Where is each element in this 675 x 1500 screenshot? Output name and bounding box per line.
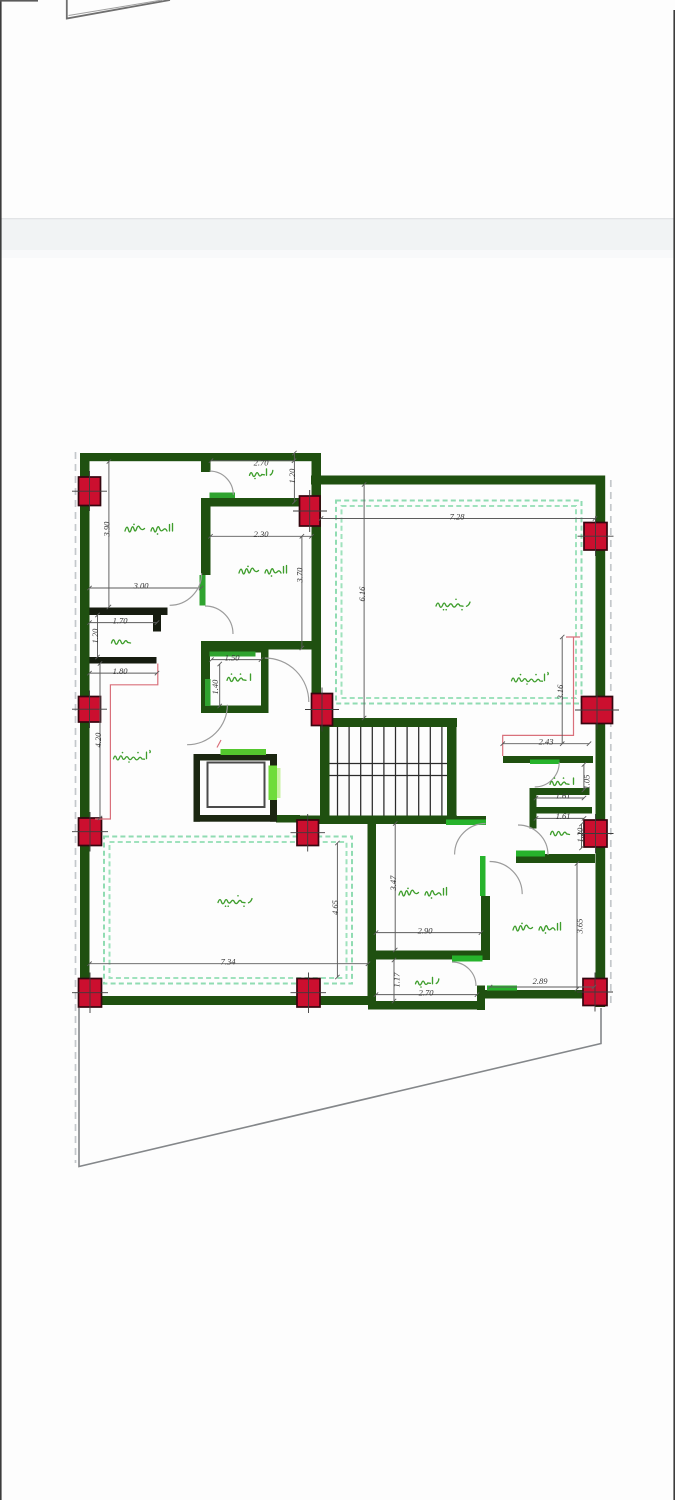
svg-text:1.80: 1.80 xyxy=(113,666,129,676)
svg-text:6.16: 6.16 xyxy=(357,586,367,602)
svg-text:2.70: 2.70 xyxy=(419,988,435,998)
svg-text:1.61: 1.61 xyxy=(556,791,571,801)
svg-text:1.05: 1.05 xyxy=(582,775,592,790)
svg-text:1.17: 1.17 xyxy=(392,972,402,988)
svg-text:3.90: 3.90 xyxy=(102,521,112,538)
svg-text:2.89: 2.89 xyxy=(533,976,549,986)
svg-text:3.70: 3.70 xyxy=(295,567,305,584)
svg-text:1.70: 1.70 xyxy=(113,616,129,626)
svg-text:1.20: 1.20 xyxy=(287,468,297,484)
svg-text:3.16: 3.16 xyxy=(555,684,565,701)
svg-text:3.47: 3.47 xyxy=(388,875,398,892)
svg-text:4.65: 4.65 xyxy=(330,900,340,915)
svg-text:1.61: 1.61 xyxy=(556,811,571,821)
svg-text:2.43: 2.43 xyxy=(539,737,554,747)
svg-text:1.50: 1.50 xyxy=(225,653,241,663)
svg-text:7.28: 7.28 xyxy=(450,512,466,522)
svg-text:3.65: 3.65 xyxy=(575,919,585,935)
svg-text:3.00: 3.00 xyxy=(133,581,150,591)
svg-text:2.90: 2.90 xyxy=(418,926,434,936)
svg-text:7.34: 7.34 xyxy=(221,957,237,967)
svg-text:2.30: 2.30 xyxy=(254,529,270,539)
svg-text:1.20: 1.20 xyxy=(575,827,585,843)
svg-text:4.20: 4.20 xyxy=(93,732,103,748)
svg-text:2.70: 2.70 xyxy=(254,458,270,468)
svg-text:1.20: 1.20 xyxy=(90,628,100,644)
svg-text:1.40: 1.40 xyxy=(210,679,220,695)
